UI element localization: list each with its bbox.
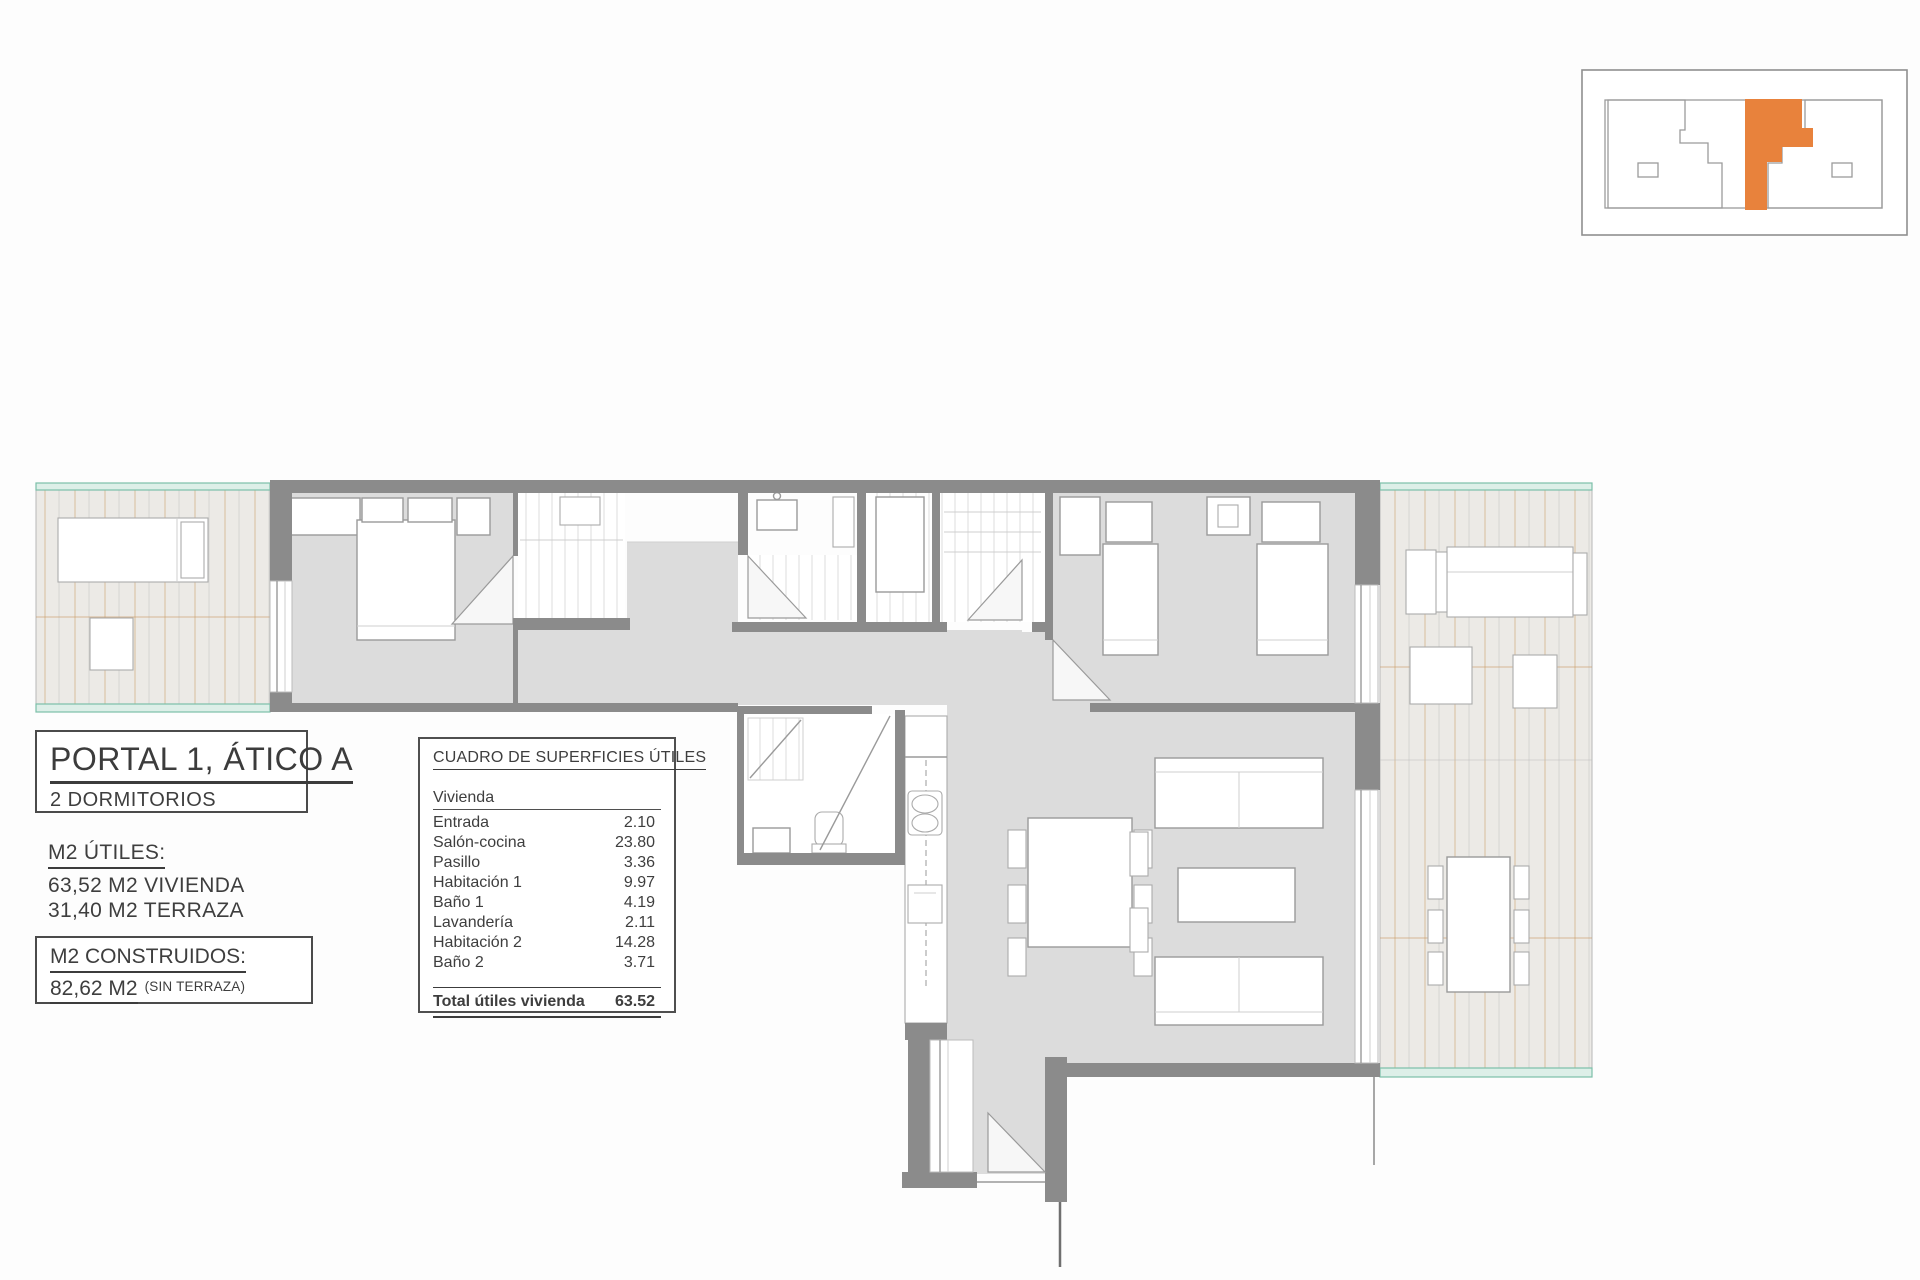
outdoor-armchair [1410,647,1472,704]
surfaces-table-group: Vivienda [433,789,661,810]
nightstand-with-lamp [1207,497,1250,535]
cooktop [908,885,942,923]
dining-table [1028,818,1132,947]
shower [748,718,803,780]
kitchen [905,716,947,1023]
nightstand [457,498,490,535]
built-area-note: (SIN TERRAZA) [145,979,246,994]
built-area-value: 82,62 M2 [50,977,138,1004]
boundary-lines [1060,1077,1374,1267]
key-plan-frame [1582,70,1907,235]
terrace-dining-set [1428,857,1529,992]
laundry-closet [866,493,932,622]
surfaces-table-heading: CUADRO DE SUPERFICIES ÚTILES [433,749,706,770]
title-box: PORTAL 1, ÁTICO A 2 DORMITORIOS [35,730,308,813]
vanity-sink [753,828,790,853]
surfaces-table-rows: Entrada 2.10 Salón-cocina 23.80 Pasillo … [433,813,661,973]
surfaces-table: CUADRO DE SUPERFICIES ÚTILES Vivienda En… [418,737,676,1013]
shower-column [833,497,854,547]
dresser [290,498,360,535]
living-room-window [1355,790,1378,1063]
bathroom-2 [744,714,895,853]
terrace-side-table [90,618,133,670]
single-bed-2 [1257,502,1328,655]
plan-subtitle: 2 DORMITORIOS [50,789,306,812]
table-total-row: Total útiles vivienda 63.52 [433,987,661,1018]
bedroom-2-window [1355,585,1378,703]
floor-plan-drawing [0,0,1920,1280]
bedroom-1-window [270,581,292,692]
table-row: Entrada 2.10 [433,813,661,833]
table-row: Habitación 1 9.97 [433,873,661,893]
outdoor-sofa [1406,547,1587,617]
sink [757,500,797,530]
coffee-table [1178,868,1295,922]
table-row: Baño 2 3.71 [433,953,661,973]
side-table [1130,832,1148,876]
bathroom-1 [748,493,857,621]
table-total-value: 63.52 [615,993,661,1011]
floor-plan-page: PORTAL 1, ÁTICO A 2 DORMITORIOS M2 ÚTILE… [0,0,1920,1280]
kitchen-sink [908,791,942,835]
walk-in-closet [518,493,625,618]
table-row: Pasillo 3.36 [433,853,661,873]
table-row: Salón-cocina 23.80 [433,833,661,853]
left-terrace [36,483,270,712]
useful-area-heading: M2 ÚTILES: [48,840,165,869]
side-table [1130,908,1148,952]
table-row: Lavandería 2.11 [433,913,661,933]
storage-closet [940,493,1045,622]
useful-area-block: M2 ÚTILES: 63,52 M2 VIVIENDA 31,40 M2 TE… [48,840,245,923]
key-plan [1582,70,1907,235]
table-row: Habitación 2 14.28 [433,933,661,953]
table-total-label: Total útiles vivienda [433,993,585,1011]
right-terrace [1380,483,1592,1077]
useful-area-vivienda: 63,52 M2 VIVIENDA [48,873,245,898]
wardrobe [1060,497,1100,555]
sun-lounger [58,518,208,582]
useful-area-terraza: 31,40 M2 TERRAZA [48,898,245,923]
table-row: Baño 1 4.19 [433,893,661,913]
plan-title: PORTAL 1, ÁTICO A [50,741,353,784]
sofa-1 [1155,758,1323,828]
built-area-heading: M2 CONSTRUIDOS: [50,945,246,973]
washer-cabinet [876,497,924,592]
outdoor-coffee-table [1513,655,1557,708]
single-bed-1 [1103,502,1158,655]
sofa-2 [1155,957,1323,1025]
built-area-box: M2 CONSTRUIDOS: 82,62 M2(SIN TERRAZA) [35,936,313,1004]
